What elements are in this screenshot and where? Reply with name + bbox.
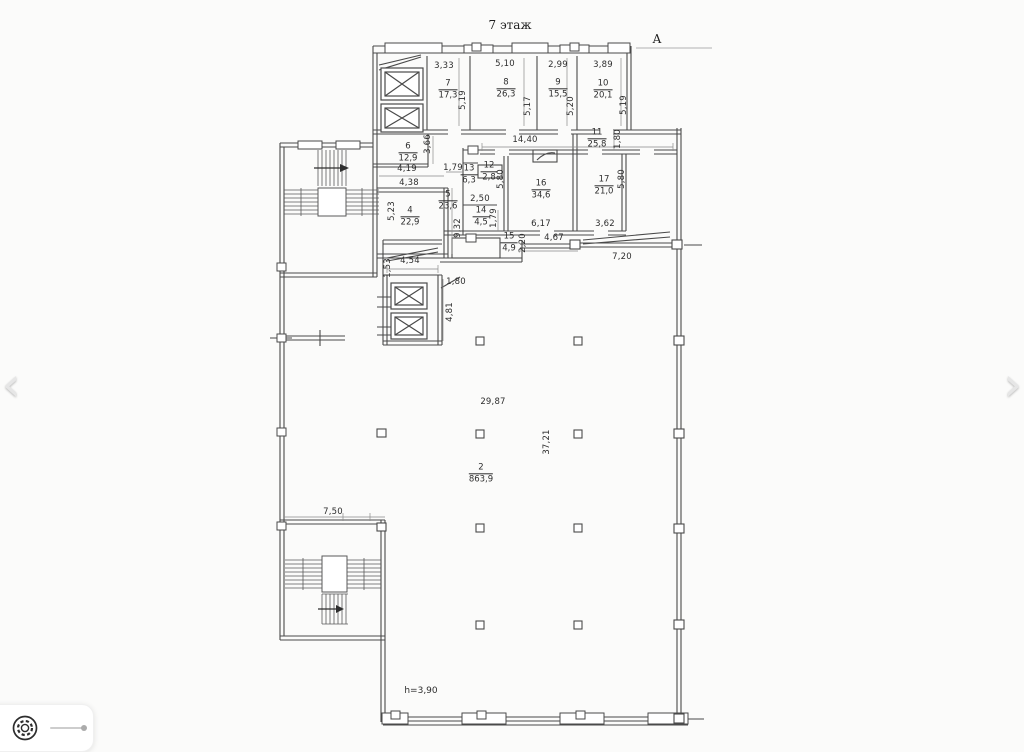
dimension-lines bbox=[284, 58, 673, 521]
floor-plan-drawing bbox=[0, 0, 1024, 733]
viewer-controls-card bbox=[0, 704, 94, 752]
staircase-bottom bbox=[285, 556, 381, 624]
prev-image-button[interactable]: ‹ bbox=[2, 356, 36, 412]
chevron-left-icon: ‹ bbox=[2, 357, 20, 411]
door-openings bbox=[448, 127, 654, 237]
next-image-button[interactable]: › bbox=[988, 356, 1022, 412]
staircase-top bbox=[284, 150, 379, 216]
ceiling-height-note: h=3,90 bbox=[404, 686, 437, 696]
gear-icon[interactable] bbox=[11, 714, 39, 742]
walls bbox=[270, 46, 704, 725]
zoom-slider[interactable] bbox=[50, 727, 84, 729]
chevron-right-icon: › bbox=[1004, 357, 1022, 411]
axis-a-label: A bbox=[653, 32, 662, 46]
image-viewer-stage: 717,3826,3915,51020,1612,91125,8136,3122… bbox=[0, 0, 1024, 733]
zoom-slider-handle[interactable] bbox=[81, 725, 87, 731]
plan-title: 7 этаж bbox=[488, 18, 531, 32]
elevator-shafts bbox=[381, 68, 427, 339]
